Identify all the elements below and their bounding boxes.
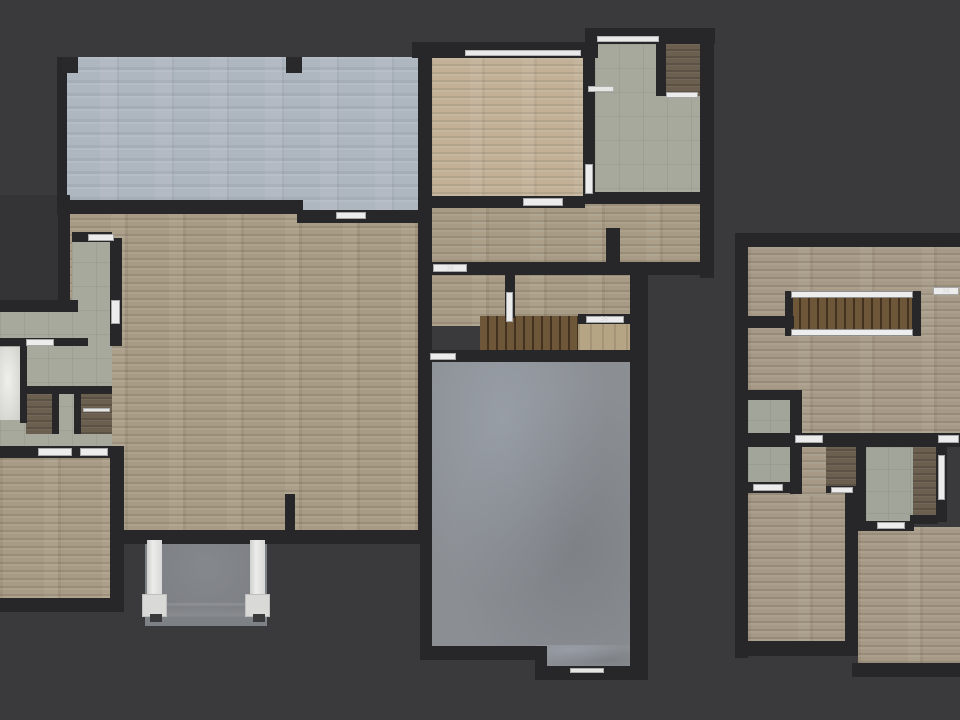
closet-b-door [938, 455, 945, 500]
center-wall [748, 433, 960, 447]
bath-center-floor [866, 447, 913, 525]
closet-2-floor [80, 392, 112, 434]
patio-door [336, 212, 366, 219]
garage-floor-ext [535, 645, 637, 668]
bath-left-right-wall [790, 394, 802, 494]
bedroom-2-bottom-wall [852, 663, 960, 677]
closet-a-floor [826, 444, 858, 489]
closet-1-floor [26, 394, 52, 434]
bedroom-b-bottom-wall [0, 598, 124, 612]
closet-a-door [831, 487, 853, 493]
stair-cap-right [912, 291, 921, 336]
floor-plan-canvas: 3636 36 [0, 0, 960, 720]
patio-post-1 [62, 57, 78, 73]
stair-stub-door [506, 292, 513, 322]
patio-bottom-wall-left [57, 200, 303, 214]
bath-center-door [877, 522, 905, 529]
garage-bottom-wall-left [420, 646, 547, 660]
closet-bath-divider [856, 444, 866, 526]
door-dim-label: 36 [934, 288, 958, 296]
door-dim-label: 36 [590, 316, 618, 324]
hall-closet-door [666, 92, 698, 98]
closet-divider-2 [74, 392, 81, 434]
hallway-closet-stub [606, 228, 620, 264]
bedroom-b-floor [0, 452, 114, 604]
shower-pan [0, 347, 20, 420]
closet-b-floor [913, 447, 938, 519]
patio-floor [62, 57, 418, 215]
closet-divider-1 [52, 394, 59, 434]
bedroom-a-left-wall [418, 57, 432, 537]
bathroom-door [585, 164, 593, 194]
bathroom-bottom-wall [583, 192, 714, 204]
utility-bath-door [26, 339, 54, 346]
patio-left-wall [57, 57, 67, 215]
closet-top-wall [26, 386, 112, 394]
mudroom-right-wall [110, 238, 122, 346]
patio-post-2 [286, 57, 302, 73]
bath-left-door [753, 484, 783, 491]
closet-right-door [938, 435, 959, 443]
stairs-down [480, 316, 578, 354]
unit1-right-wall-upper [700, 28, 714, 278]
closet-rod [83, 408, 110, 412]
dining-stub-wall [285, 494, 295, 534]
hall-closet-floor [664, 44, 702, 96]
bathroom-shelf [588, 86, 614, 92]
bedroom-2-floor [858, 527, 960, 668]
bedroom-a-door [523, 198, 563, 206]
upper-hall-door [795, 435, 823, 443]
garage-entry-door [430, 353, 456, 360]
unit1-right-wall-lower [630, 270, 648, 680]
bedroom-b-door-2 [80, 448, 108, 456]
bedroom-a-floor [430, 58, 585, 198]
closet-b-bottom-wall [910, 515, 938, 524]
stair-rail-bottom [791, 329, 913, 336]
porch-foot-2 [253, 614, 265, 622]
bedroom-b-door-1 [38, 448, 72, 456]
mudroom-side-door [111, 300, 120, 324]
bedroom-b-right-wall [110, 446, 124, 612]
bedroom-1-bottom-wall [735, 641, 858, 656]
garage-service-door [570, 668, 604, 673]
unit2-top-wall [735, 233, 960, 247]
porch-foot-1 [150, 614, 162, 622]
bedroom-a-window [465, 50, 581, 56]
door-dim-label: 36 [436, 265, 464, 273]
garage-top-wall [428, 350, 638, 362]
mass-right-wall [58, 195, 70, 312]
mudroom-door [88, 234, 114, 241]
bathroom-window [597, 36, 659, 42]
unit2-left-wall [735, 233, 748, 658]
stair-rail-top [791, 291, 913, 298]
hall-closet-wall [656, 44, 666, 96]
garage-floor [430, 360, 637, 650]
hallway-floor [428, 198, 706, 270]
stairs-up [792, 298, 912, 329]
utility-divider-wall [20, 345, 27, 423]
garage-left-wall [420, 534, 432, 660]
